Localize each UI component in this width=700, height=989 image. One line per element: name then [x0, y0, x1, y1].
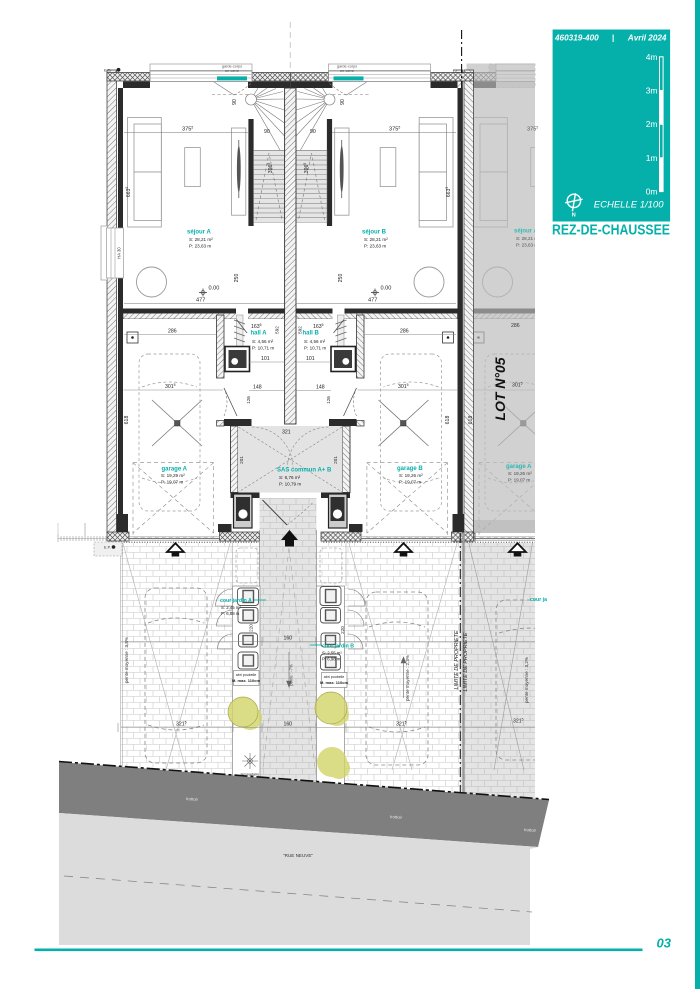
svg-text:220: 220 — [340, 626, 345, 634]
svg-text:1m: 1m — [646, 153, 658, 163]
svg-text:lampadaire: lampadaire — [241, 773, 260, 777]
svg-text:LOT N°05: LOT N°05 — [492, 357, 508, 420]
svg-text:pente : -7%: pente : -7% — [289, 664, 294, 686]
svg-text:286: 286 — [511, 323, 520, 329]
svg-text:S: 4,56 m²: S: 4,56 m² — [252, 339, 274, 344]
svg-text:N: N — [572, 213, 576, 219]
svg-text:P: 23,63 m: P: 23,63 m — [189, 244, 211, 249]
svg-text:90: 90 — [232, 99, 238, 105]
svg-text:286: 286 — [400, 329, 409, 335]
svg-text:E.P.: E.P. — [104, 546, 111, 550]
svg-text:S: 28,21 m²: S: 28,21 m² — [189, 237, 213, 242]
svg-text:03: 03 — [657, 936, 672, 951]
svg-text:321: 321 — [282, 430, 291, 436]
svg-text:250: 250 — [338, 274, 344, 283]
svg-text:P: 10,71 m: P: 10,71 m — [304, 346, 326, 351]
svg-text:P: 23,63 m: P: 23,63 m — [364, 244, 386, 249]
svg-text:M. max. 110cm: M. max. 110cm — [232, 678, 260, 683]
svg-text:HA 30: HA 30 — [117, 247, 122, 259]
svg-text:201: 201 — [333, 456, 338, 464]
svg-text:160: 160 — [284, 722, 293, 728]
svg-text:S: 19,26 m²: S: 19,26 m² — [399, 473, 423, 478]
svg-text:ECHELLE 1/100: ECHELLE 1/100 — [594, 200, 664, 211]
svg-text:cour jardin B: cour jardin B — [322, 644, 354, 650]
svg-text:220: 220 — [249, 624, 254, 632]
svg-text:P: 6,88 m: P: 6,88 m — [221, 611, 240, 616]
svg-text:|: | — [612, 34, 614, 43]
svg-text:"RUE NEUVE": "RUE NEUVE" — [283, 853, 313, 858]
svg-text:618: 618 — [468, 416, 474, 425]
svg-text:201: 201 — [239, 456, 244, 464]
svg-text:trottoir: trottoir — [390, 814, 403, 820]
svg-text:101: 101 — [306, 356, 315, 362]
svg-text:460319-400: 460319-400 — [554, 34, 599, 43]
svg-text:séjour A: séjour A — [187, 230, 211, 236]
svg-text:4m: 4m — [646, 52, 658, 62]
svg-text:0.00: 0.00 — [381, 286, 392, 292]
svg-text:REZ-DE-CHAUSSEE: REZ-DE-CHAUSSEE — [552, 223, 670, 239]
svg-text:en verre: en verre — [225, 69, 239, 73]
svg-text:S: 2,55 m²: S: 2,55 m² — [322, 651, 342, 656]
svg-text:90: 90 — [264, 129, 270, 135]
svg-text:477: 477 — [368, 298, 377, 304]
svg-text:SAS commun A+ B: SAS commun A+ B — [277, 468, 332, 474]
svg-text:LIMITE DE PROPRIETE: LIMITE DE PROPRIETE — [463, 632, 469, 691]
svg-text:LIMITE DE PROPRIETE: LIMITE DE PROPRIETE — [454, 630, 460, 689]
svg-text:cour ja: cour ja — [530, 597, 547, 603]
svg-text:P: 19,07 m: P: 19,07 m — [508, 478, 530, 483]
svg-text:126: 126 — [246, 396, 251, 404]
svg-text:148: 148 — [316, 385, 325, 391]
svg-text:abri poubelle: abri poubelle — [324, 675, 345, 679]
svg-text:pente moyenne : 3,2%: pente moyenne : 3,2% — [524, 657, 529, 703]
svg-text:garde-corps: garde-corps — [337, 65, 357, 69]
svg-text:P: 10,79 m: P: 10,79 m — [279, 482, 301, 487]
svg-text:618: 618 — [124, 416, 130, 425]
svg-text:pente moyenne : 3,8%: pente moyenne : 3,8% — [124, 637, 129, 683]
svg-text:477: 477 — [196, 298, 205, 304]
svg-text:160: 160 — [284, 636, 293, 642]
svg-text:Avril 2024: Avril 2024 — [627, 34, 667, 43]
svg-text:592: 592 — [275, 326, 280, 334]
svg-text:2m: 2m — [646, 119, 658, 129]
svg-text:P: 19,07 m: P: 19,07 m — [399, 480, 421, 485]
svg-text:S: 28,21 m²: S: 28,21 m² — [364, 237, 388, 242]
svg-text:592: 592 — [298, 326, 303, 334]
svg-text:S: 19,26 m²: S: 19,26 m² — [508, 471, 532, 476]
svg-text:P: 6,98 m: P: 6,98 m — [322, 657, 341, 662]
svg-text:126: 126 — [326, 396, 331, 404]
svg-text:90: 90 — [340, 99, 346, 105]
svg-text:148: 148 — [253, 385, 262, 391]
svg-text:cour jardin A: cour jardin A — [220, 598, 252, 604]
svg-text:0.00: 0.00 — [209, 286, 220, 292]
svg-text:garage A: garage A — [162, 467, 188, 473]
svg-text:P: 10,71 m: P: 10,71 m — [252, 346, 274, 351]
svg-text:hall B: hall B — [303, 331, 320, 337]
svg-text:trottoir: trottoir — [524, 827, 537, 833]
svg-text:S: 6,76 m²: S: 6,76 m² — [279, 475, 301, 480]
svg-text:250: 250 — [234, 274, 240, 283]
svg-text:trottoir: trottoir — [186, 796, 199, 802]
svg-text:en verre: en verre — [340, 69, 354, 73]
svg-text:pente moyenne : 2,3%: pente moyenne : 2,3% — [405, 655, 410, 701]
svg-text:hall A: hall A — [251, 331, 268, 337]
svg-text:S: 2,45 m²: S: 2,45 m² — [221, 605, 241, 610]
svg-text:P: 19,07 m: P: 19,07 m — [161, 480, 183, 485]
svg-text:garage B: garage B — [397, 466, 423, 472]
svg-text:3m: 3m — [646, 86, 658, 96]
svg-text:séjour A: séjour A — [514, 229, 538, 235]
svg-text:garage A: garage A — [506, 464, 532, 470]
svg-text:S: 4,56 m²: S: 4,56 m² — [304, 339, 326, 344]
svg-text:E.P.: E.P. — [104, 69, 111, 73]
svg-text:90: 90 — [310, 129, 316, 135]
svg-text:101: 101 — [261, 356, 270, 362]
svg-text:286: 286 — [168, 329, 177, 335]
svg-text:garde-corps: garde-corps — [222, 65, 242, 69]
svg-text:S: 19,29 m²: S: 19,29 m² — [161, 473, 185, 478]
svg-text:M. max. 110cm: M. max. 110cm — [320, 680, 348, 685]
svg-text:séjour B: séjour B — [362, 230, 387, 236]
svg-text:abri poubelle: abri poubelle — [236, 673, 257, 677]
svg-text:0m: 0m — [646, 187, 658, 197]
svg-text:618: 618 — [445, 416, 451, 425]
